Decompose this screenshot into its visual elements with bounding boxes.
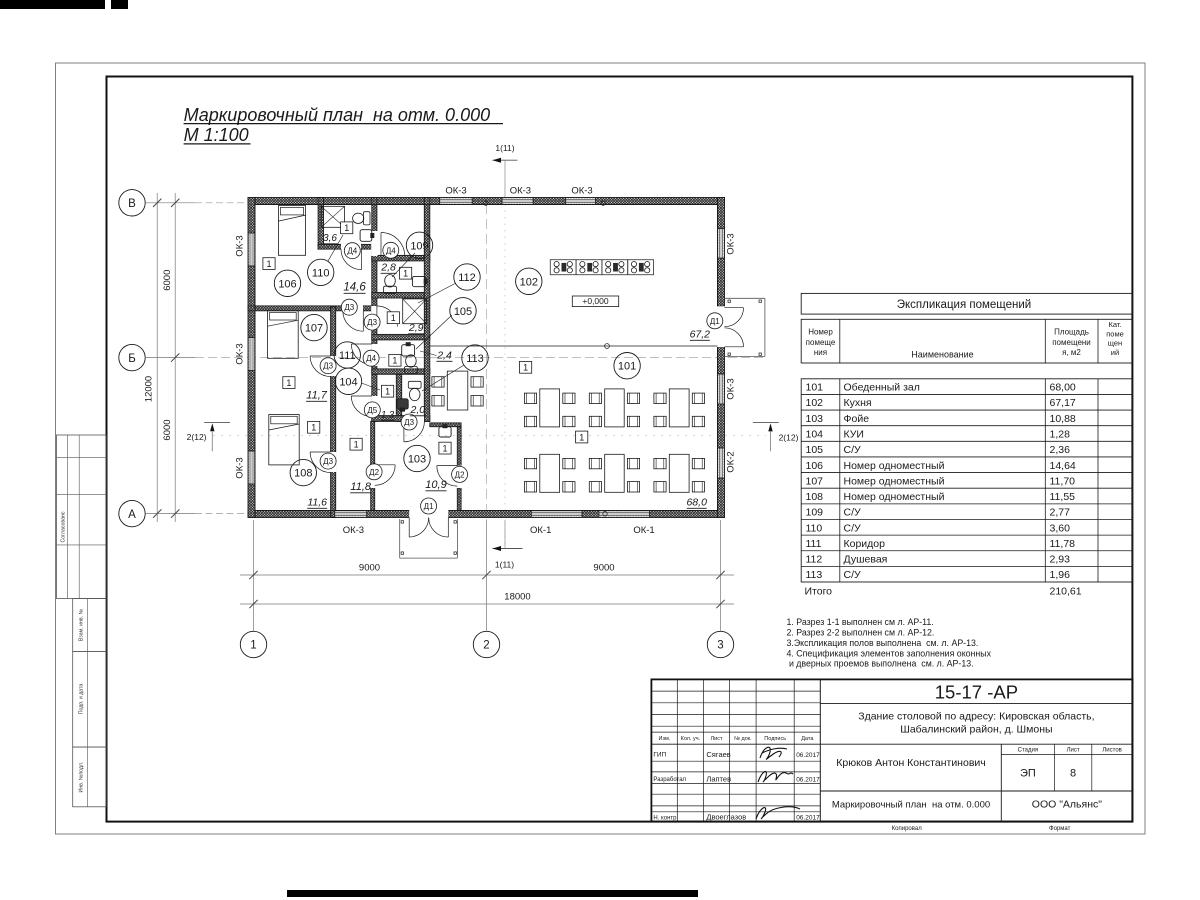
svg-text:Листов: Листов [1102,748,1122,754]
svg-text:67,2: 67,2 [690,329,711,341]
svg-text:Д4: Д4 [386,246,396,255]
svg-text:103: 103 [806,413,824,425]
svg-text:Формат: Формат [1049,826,1071,832]
svg-text:109: 109 [806,507,824,519]
svg-text:2,9: 2,9 [408,322,424,334]
svg-text:Номер одноместный: Номер одноместный [844,475,945,487]
svg-text:Д3: Д3 [323,457,333,466]
svg-text:1: 1 [442,443,447,453]
svg-text:С/У: С/У [844,444,862,456]
svg-text:Номер одноместный: Номер одноместный [844,460,945,472]
svg-text:113: 113 [466,353,484,365]
svg-text:С/У: С/У [844,522,862,534]
svg-text:3.Экспликация полов выполнена: 3.Экспликация полов выполнена см. л. АР-… [787,638,979,648]
svg-text:110: 110 [806,522,823,534]
svg-text:1,28: 1,28 [1050,428,1071,440]
svg-text:102: 102 [806,397,824,409]
svg-text:101: 101 [618,361,636,373]
svg-text:111: 111 [806,538,822,550]
svg-text:Д1: Д1 [710,317,720,326]
svg-text:1: 1 [354,440,359,450]
svg-text:104: 104 [806,428,824,440]
svg-text:и дверных проемов выполнена с: и дверных проемов выполнена см. л. АР-13… [787,659,974,669]
svg-text:ОК-3: ОК-3 [726,378,737,399]
svg-text:1: 1 [391,313,396,323]
svg-text:Кол. уч.: Кол. уч. [681,736,701,742]
svg-text:ОК-3: ОК-3 [235,457,246,478]
svg-text:1: 1 [403,269,408,279]
svg-text:М 1:100: М 1:100 [184,125,249,145]
svg-text:ОК-3: ОК-3 [726,233,737,254]
svg-text:ОК-2: ОК-2 [726,451,737,472]
svg-text:ий: ий [1111,348,1119,357]
svg-text:А: А [128,509,136,521]
svg-text:67,17: 67,17 [1050,397,1076,409]
svg-text:113: 113 [806,569,823,581]
svg-text:6000: 6000 [162,419,173,440]
svg-text:Здание столовой по адресу: Кир: Здание столовой по адресу: Кировская обл… [858,711,1094,723]
svg-text:Кухня: Кухня [844,397,872,409]
svg-text:3,60: 3,60 [1050,522,1071,534]
svg-text:105: 105 [454,306,472,318]
svg-text:+0,000: +0,000 [582,296,609,306]
svg-text:Дата: Дата [801,736,814,742]
svg-text:Наименование: Наименование [911,350,973,360]
svg-text:3: 3 [717,640,723,652]
svg-text:Итого: Итого [805,586,833,598]
svg-text:ЭП: ЭП [1020,768,1036,780]
svg-text:103: 103 [408,454,426,466]
svg-text:105: 105 [806,444,824,456]
svg-text:15-17 -АР: 15-17 -АР [935,682,1018,703]
svg-text:4. Спецификация элементов запо: 4. Спецификация элементов заполнения око… [787,648,992,658]
svg-text:1: 1 [579,432,584,442]
svg-text:Сягаев: Сягаев [706,750,730,759]
svg-text:Подпись: Подпись [764,736,786,742]
svg-text:Изм.: Изм. [659,736,671,742]
svg-text:я, м2: я, м2 [1062,348,1081,357]
svg-text:1(11): 1(11) [495,143,514,153]
svg-text:Д4: Д4 [366,354,376,363]
svg-text:помещени: помещени [1052,338,1091,347]
svg-text:2,77: 2,77 [1050,507,1071,519]
svg-text:С/У: С/У [844,507,862,519]
svg-text:щен: щен [1108,339,1122,348]
svg-text:Согласованс: Согласованс [61,511,67,542]
svg-text:Н. контр.: Н. контр. [653,815,678,821]
svg-text:06.2017: 06.2017 [796,752,820,759]
svg-text:Инв. №подл.: Инв. №подл. [79,762,85,793]
svg-text:2. Разрез 2-2 выполнен см л. А: 2. Разрез 2-2 выполнен см л. АР-12. [787,628,935,638]
svg-text:107: 107 [305,323,323,335]
svg-text:В: В [128,198,136,210]
svg-text:108: 108 [294,468,312,480]
svg-text:Маркировочный план на отм. 0.: Маркировочный план на отм. 0.000 [184,105,491,125]
svg-text:1: 1 [392,356,397,366]
svg-text:№ док.: № док. [734,736,752,742]
svg-text:ОК-3: ОК-3 [510,186,531,197]
svg-text:Лист: Лист [711,736,723,742]
svg-text:1: 1 [266,259,271,269]
svg-text:ния: ния [814,348,827,357]
svg-text:Разработал: Разработал [653,777,686,783]
svg-text:2,8: 2,8 [380,262,396,274]
svg-text:Д2: Д2 [369,468,379,477]
svg-text:102: 102 [520,276,538,288]
svg-text:111: 111 [339,350,356,362]
svg-text:11,55: 11,55 [1050,491,1076,503]
svg-text:ГИП: ГИП [653,752,666,759]
svg-text:1: 1 [286,378,291,388]
svg-text:110: 110 [312,267,330,279]
svg-text:Площадь: Площадь [1054,328,1089,337]
svg-text:ООО "Альянс": ООО "Альянс" [1032,799,1102,811]
svg-text:2,4: 2,4 [436,350,452,362]
svg-text:Д5: Д5 [367,406,377,415]
svg-text:Номер одноместный: Номер одноместный [844,491,945,503]
svg-text:1. Разрез 1-1 выполнен см л. А: 1. Разрез 1-1 выполнен см л. АР-11. [787,617,934,627]
svg-text:поме: поме [1106,329,1124,338]
svg-text:Лаптев: Лаптев [706,775,731,784]
svg-text:ОК-3: ОК-3 [235,235,246,256]
svg-text:1: 1 [523,363,528,373]
svg-text:14,6: 14,6 [343,282,366,294]
svg-text:1(11): 1(11) [495,560,514,570]
svg-text:11,8: 11,8 [350,481,371,493]
svg-text:2: 2 [483,640,489,652]
svg-text:10,88: 10,88 [1050,413,1076,425]
svg-text:210,61: 210,61 [1050,586,1082,598]
svg-text:112: 112 [806,554,823,566]
svg-text:106: 106 [806,460,824,472]
svg-text:2,93: 2,93 [1050,554,1071,566]
svg-text:1: 1 [385,387,390,397]
svg-text:помеще: помеще [806,338,836,347]
svg-text:8: 8 [1070,768,1076,780]
svg-text:1: 1 [311,423,316,433]
svg-text:104: 104 [339,376,357,388]
svg-text:Коридор: Коридор [844,538,886,550]
svg-text:ОК-1: ОК-1 [530,525,551,536]
svg-text:Подп. и дата: Подп. и дата [79,684,85,715]
svg-text:11,6: 11,6 [307,497,327,509]
svg-text:06.2017: 06.2017 [796,815,820,822]
svg-text:ОК-3: ОК-3 [571,186,592,197]
svg-text:109: 109 [410,240,428,252]
svg-text:06.2017: 06.2017 [796,777,820,784]
svg-text:Фойе: Фойе [844,413,870,425]
svg-text:Обеденный зал: Обеденный зал [844,382,920,394]
svg-text:Экспликация помещений: Экспликация помещений [897,299,1032,311]
svg-text:Б: Б [128,353,136,365]
svg-text:68,00: 68,00 [1050,382,1076,394]
svg-text:Лист: Лист [1067,748,1080,754]
svg-text:11,70: 11,70 [1050,475,1076,487]
svg-text:1,3: 1,3 [381,410,395,421]
svg-text:Двоеглазов: Двоеглазов [706,813,746,822]
svg-text:ОК-3: ОК-3 [343,525,364,536]
svg-text:Душевая: Душевая [844,554,888,566]
svg-text:КУИ: КУИ [844,428,864,440]
svg-text:1,96: 1,96 [1050,569,1071,581]
svg-text:Номер: Номер [808,328,833,337]
svg-text:Копировал: Копировал [892,826,923,832]
svg-text:Стадия: Стадия [1018,748,1038,754]
svg-text:11,78: 11,78 [1050,538,1076,550]
svg-text:101: 101 [806,382,824,394]
svg-text:9000: 9000 [593,563,614,574]
svg-text:ОК-1: ОК-1 [633,525,654,536]
svg-text:Д3: Д3 [404,418,414,427]
svg-text:С/У: С/У [844,569,862,581]
svg-text:68,0: 68,0 [686,497,707,509]
svg-text:Д4: Д4 [347,247,357,256]
svg-text:Шабалинский район, д. Шмоны: Шабалинский район, д. Шмоны [900,724,1052,736]
svg-text:12000: 12000 [144,376,155,402]
svg-text:Д2: Д2 [455,470,465,479]
svg-text:3,6: 3,6 [323,233,337,244]
svg-text:107: 107 [806,475,824,487]
svg-text:6000: 6000 [162,270,173,291]
svg-text:2,36: 2,36 [1050,444,1071,456]
svg-text:Кат.: Кат. [1108,320,1121,329]
svg-text:ОК-3: ОК-3 [445,186,466,197]
svg-text:106: 106 [278,278,296,290]
svg-text:1: 1 [344,223,349,233]
svg-text:Д3: Д3 [344,303,354,312]
svg-text:2(12): 2(12) [779,433,799,443]
svg-text:9000: 9000 [359,563,380,574]
svg-text:ОК-3: ОК-3 [235,343,246,364]
svg-text:Д3: Д3 [323,362,333,371]
svg-text:11,7: 11,7 [306,390,327,402]
svg-text:10,9: 10,9 [425,479,446,491]
svg-text:Д1: Д1 [424,502,434,511]
svg-text:Крюков Антон Константинович: Крюков Антон Константинович [836,757,986,769]
svg-text:14,64: 14,64 [1050,460,1076,472]
svg-text:112: 112 [458,272,476,284]
svg-text:108: 108 [806,491,824,503]
svg-text:Д3: Д3 [367,318,377,327]
svg-text:1: 1 [250,640,256,652]
svg-text:2,0: 2,0 [409,404,425,416]
svg-text:Маркировочный план на отм. 0.: Маркировочный план на отм. 0.000 [832,800,990,811]
svg-text:18000: 18000 [504,592,530,603]
svg-text:2(12): 2(12) [187,432,207,442]
svg-text:Взам. инв. №: Взам. инв. № [79,608,85,641]
